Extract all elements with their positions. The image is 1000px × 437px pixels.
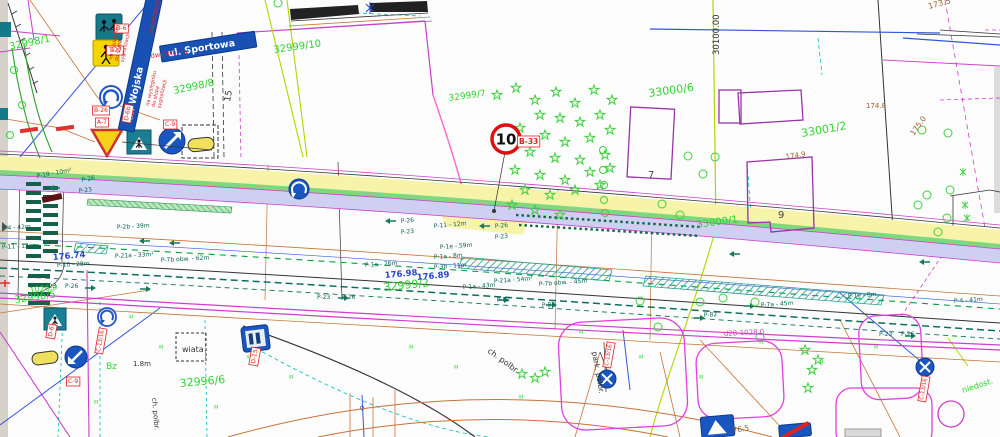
svg-text:7: 7 [648,170,654,181]
keep-left-sign [65,346,87,368]
marking-label: P-82 [542,301,556,309]
svg-text:C-9: C-9 [165,121,175,128]
marking-label: P-23 [317,294,330,301]
partial-gray-box [845,429,881,437]
sign-code: A-7 [96,118,109,127]
svg-text:B-33: B-33 [519,137,538,146]
sign-code: B-26 [93,106,110,115]
dimension-label: 15 [223,90,235,103]
svg-text:P-82: P-82 [704,311,718,319]
sign-code: D-6 [46,324,57,339]
elevation-label: 174.8 [866,102,886,110]
marking-label: P-23 [401,228,415,236]
sign-code: C-9 [67,377,80,386]
cad-plan-viewport: ul. Wojska ul. Sportowa 10 32998/132998/… [0,0,1000,437]
svg-text:10: 10 [496,131,517,149]
svg-text:P-23: P-23 [43,283,56,290]
left-edge-strip [0,0,8,437]
pedestrian-crossing-sign [127,130,151,154]
svg-text:A-7: A-7 [97,119,107,126]
svg-text:15: 15 [223,90,235,103]
building-number: 7 [648,170,654,181]
marking-label: P-26 [342,294,355,301]
zone-label: Bz [106,362,117,372]
speed-limit-sign: 10 [492,125,520,153]
building-number: 9 [778,210,784,221]
marking-label: P-23 [43,283,56,290]
dimension-label: 1.8m [133,360,151,368]
roundabout-sign [100,86,122,108]
sign-code: B-33 [518,136,540,147]
svg-text:C-9: C-9 [68,378,78,385]
svg-text:174.8: 174.8 [866,102,886,110]
marking-label: P-26 [401,217,415,225]
svg-text:P-82: P-82 [542,301,556,309]
svg-text:Bz: Bz [106,362,117,372]
svg-text:P-26: P-26 [65,283,78,290]
svg-text:wiata: wiata [182,345,204,354]
marking-label: P-23 [495,233,509,241]
roundabout-sign-2 [289,179,309,199]
svg-text:1.8m: 1.8m [133,360,151,368]
crossing-end-sign [779,423,812,437]
svg-text:9: 9 [778,210,784,221]
marking-label: P-82 [704,311,718,319]
marking-label: P-26 [495,222,509,230]
svg-text:P-82: P-82 [497,296,511,304]
svg-text:P-26: P-26 [401,217,415,225]
road-plan-drawing: ul. Wojska ul. Sportowa 10 32998/132998/… [0,0,1000,437]
svg-text:30100.00: 30100.00 [712,14,722,55]
svg-text:P-23: P-23 [401,228,415,236]
crossing-arrows-sign-2 [916,358,934,376]
svg-text:P-26: P-26 [342,294,355,301]
coordinate-label: 30100.00 [712,14,722,55]
crossing-sign-bottom [700,415,735,437]
sign-post-marker [492,209,496,213]
svg-text:P-26: P-26 [495,222,509,230]
sign-code: C-9 [164,120,177,129]
shelter-label: wiata [182,345,204,354]
marking-label: P-26 [65,283,78,290]
marking-label: P-26 [901,331,914,338]
edge-sign-partial [0,22,11,37]
svg-text:P-23: P-23 [879,331,892,338]
roundabout-sign-3 [98,308,116,326]
svg-text:P-26: P-26 [901,331,914,338]
marking-label: P-23 [879,331,892,338]
svg-text:P-23: P-23 [495,233,509,241]
svg-text:B-26: B-26 [94,107,108,114]
marking-label: P-82 [497,296,511,304]
svg-text:P-23: P-23 [317,294,330,301]
edge-sign-partial [0,108,8,120]
keep-right-sign [159,128,185,154]
